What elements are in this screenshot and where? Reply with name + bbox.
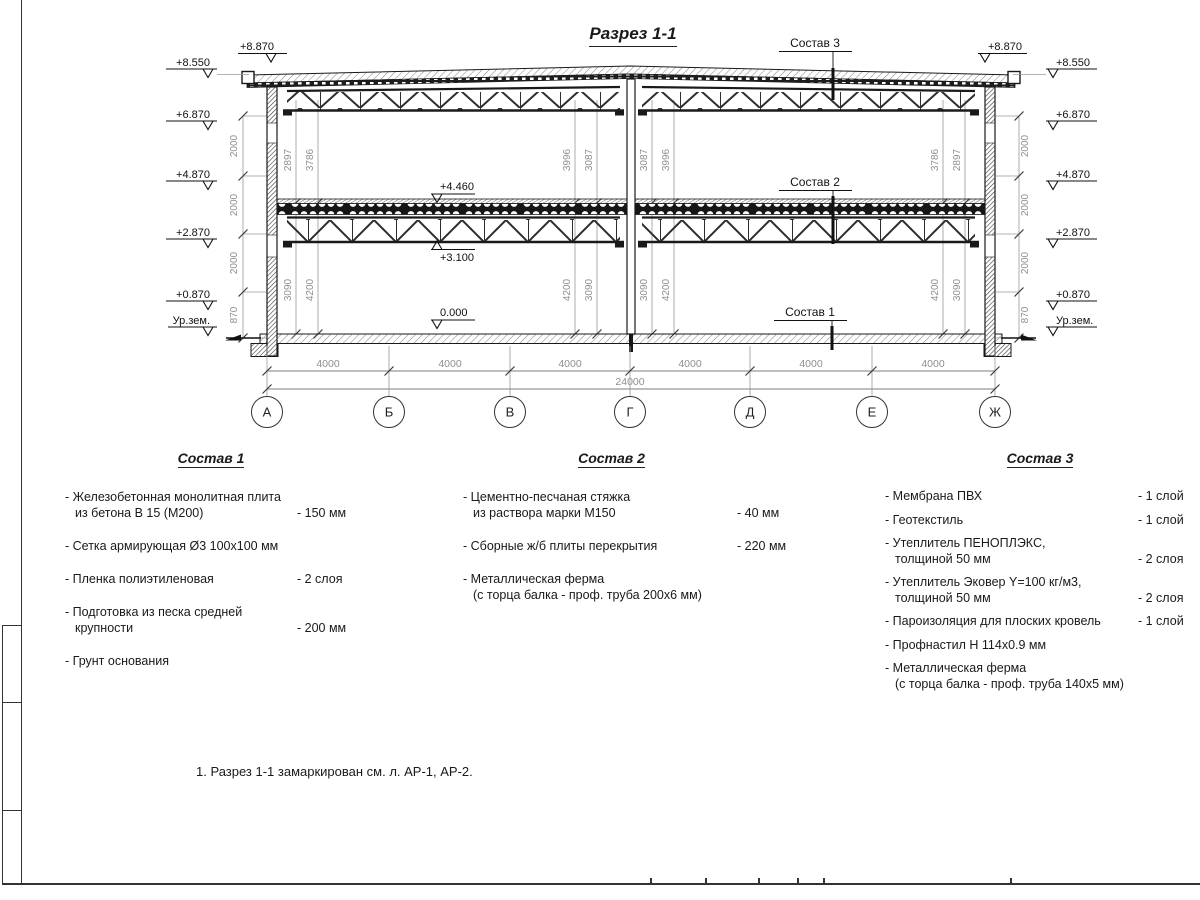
composition-title-text: Состав 1 [178,450,245,468]
wall-left [267,87,277,356]
dim-label: 2000 [1020,134,1031,157]
elevation-mark-6870-left: +6.870 [166,109,217,130]
svg-text:+0.870: +0.870 [176,289,210,301]
composition-list-2: Состав 2 - Цементно-песчаная стяжка из р… [463,450,793,620]
material-name: - Цементно-песчаная стяжка из раствора м… [463,489,737,521]
material-name: - Металлическая ферма (с торца балка - п… [463,571,737,603]
material-value: - 1 слой [1138,513,1195,529]
list-item: - Пароизоляция для плоских кровель- 1 сл… [885,614,1195,630]
svg-text:Состав 1: Состав 1 [785,305,835,319]
material-name: - Пароизоляция для плоских кровель [885,614,1138,630]
material-name: - Мембрана ПВХ [885,489,1138,505]
material-name: - Железобетонная монолитная плита из бет… [65,489,297,521]
elevation-mark-8550-right: +8.550 [1013,57,1097,78]
material-name: - Утеплитель Эковер Y=100 кг/м3, толщино… [885,575,1138,606]
list-item: - Металлическая ферма (с торца балка - п… [463,571,793,603]
svg-text:+8.550: +8.550 [1056,57,1090,69]
axis-label: Д [746,405,755,420]
material-name: - Подготовка из песка средней крупности [65,604,297,636]
material-value: - 40 мм [737,505,793,521]
svg-text:+0.870: +0.870 [1056,289,1090,301]
axis-label: Ж [989,405,1001,420]
ground-level-mark-left: Ур.зем. [168,315,217,336]
list-item: - Мембрана ПВХ- 1 слой [885,489,1195,505]
svg-text:+2.870: +2.870 [176,227,210,239]
list-item: - Пленка полиэтиленовая- 2 слоя [65,571,357,587]
list-item: - Сборные ж/б плиты перекрытия- 220 мм [463,538,793,554]
list-item: - Геотекстиль- 1 слой [885,513,1195,529]
composition-title: Состав 2 [463,450,760,468]
frame-margin-line [2,625,3,884]
dim-label: 870 [1020,306,1031,323]
dim-label: 4200 [305,278,316,301]
frame-cell-divider [2,625,22,626]
svg-text:+8.870: +8.870 [988,41,1022,53]
dim-label: 3090 [283,278,294,301]
axis-label: В [506,405,515,420]
material-name: - Пленка полиэтиленовая [65,571,297,587]
dim-label: 4200 [930,278,941,301]
dim-label: 2897 [952,148,963,171]
composition-title-text: Состав 3 [1007,450,1074,468]
svg-text:+8.550: +8.550 [176,57,210,69]
elevation-mark-0870-right: +0.870 [1046,289,1097,310]
composition-list-1: Состав 1 - Железобетонная монолитная пли… [65,450,357,686]
axis-label: Б [385,405,394,420]
composition-title: Состав 3 [885,450,1195,468]
titleblock-tick [797,878,799,883]
dim-label: 2000 [1020,251,1031,274]
svg-text:+4.870: +4.870 [176,169,210,181]
material-name: - Профнастил Н 114х0.9 мм [885,638,1138,654]
elevation-mark-2870-right: +2.870 [1046,227,1097,248]
list-item: - Сетка армирующая Ø3 100х100 мм [65,538,357,554]
material-value: - 1 слой [1138,614,1195,630]
axis-label: А [263,405,272,420]
composition-title-text: Состав 2 [578,450,645,468]
dim-label: 4200 [661,278,672,301]
svg-text:Ур.зем.: Ур.зем. [1056,315,1093,327]
material-value: - 2 слоя [1138,552,1195,568]
elevation-mark-8870-right: +8.870 [978,41,1027,62]
dim-label: 2897 [283,148,294,171]
elevation-mark-4870-right: +4.870 [1046,169,1097,190]
titleblock-tick [1010,878,1012,883]
bay-dim: 4000 [678,358,702,370]
dim-label: 3090 [639,278,650,301]
svg-text:+4.870: +4.870 [1056,169,1090,181]
material-value: - 150 мм [297,505,357,521]
axis-grid: 4000 4000 4000 4000 4000 4000 24000 [263,346,1000,396]
total-dim: 24000 [615,376,644,388]
wall-right [985,87,995,356]
material-value: - 1 слой [1138,489,1195,505]
left-dim-chain: 2000 2000 2000 870 [229,112,267,343]
material-name: - Грунт основания [65,653,297,669]
roof-edge-cap [1008,72,1020,84]
list-item: - Подготовка из песка средней крупности-… [65,604,357,636]
titleblock-tick [823,878,825,883]
elevation-mark-2870-left: +2.870 [166,227,217,248]
elevation-mark-3100: +3.100 [431,241,475,264]
titleblock-tick [758,878,760,883]
material-value: - 2 слоя [297,571,357,587]
svg-text:Ур.зем.: Ур.зем. [173,315,210,327]
axis-label: Е [868,405,877,420]
dim-label: 870 [229,306,240,323]
elevation-mark-0870-left: +0.870 [166,289,217,310]
titleblock-tick [705,878,707,883]
list-item: - Утеплитель Эковер Y=100 кг/м3, толщино… [885,575,1195,606]
svg-text:+3.100: +3.100 [440,252,474,264]
material-value: - 2 слоя [1138,591,1195,607]
material-name: - Сетка армирующая Ø3 100х100 мм [65,538,297,554]
svg-text:+8.870: +8.870 [240,41,274,53]
elevation-mark-8550-left: +8.550 [166,57,249,78]
roof-truss-right [638,87,979,116]
drawing-note: 1. Разрез 1-1 замаркирован см. л. АР-1, … [196,764,473,779]
material-name: - Утеплитель ПЕНОПЛЭКС, толщиной 50 мм [885,536,1138,567]
dim-label: 3996 [562,148,573,171]
elevation-mark-0000: 0.000 [431,307,475,329]
svg-text:+6.870: +6.870 [176,109,210,121]
elevation-mark-6870-right: +6.870 [1046,109,1097,130]
material-name: - Геотекстиль [885,513,1138,529]
list-item: - Цементно-песчаная стяжка из раствора м… [463,489,793,521]
svg-text:+6.870: +6.870 [1056,109,1090,121]
list-item: - Грунт основания [65,653,357,669]
right-dim-chain: 2000 2000 2000 870 [996,112,1031,343]
dim-label: 3996 [661,148,672,171]
list-item: - Утеплитель ПЕНОПЛЭКС, толщиной 50 мм- … [885,536,1195,567]
svg-text:+2.870: +2.870 [1056,227,1090,239]
dim-label: 3087 [639,148,650,171]
svg-text:Состав 2: Состав 2 [790,175,840,189]
roof-edge-cap [242,72,254,84]
dim-label: 3090 [584,278,595,301]
dim-label: 4200 [562,278,573,301]
dim-label: 2000 [229,251,240,274]
dim-label: 2000 [229,134,240,157]
list-item: - Профнастил Н 114х0.9 мм [885,638,1195,654]
list-item: - Железобетонная монолитная плита из бет… [65,489,357,521]
dim-label: 3090 [952,278,963,301]
bay-dim: 4000 [799,358,823,370]
frame-cell-divider [2,810,22,811]
dim-label: 2000 [229,193,240,216]
roof-truss-left [283,87,624,116]
center-column [627,79,635,352]
material-name: - Металлическая ферма (с торца балка - п… [885,661,1138,692]
section-drawing: 2897 3786 3996 3087 3087 3996 3786 2897 … [0,0,1200,450]
material-value: - 200 мм [297,620,357,636]
drawing-sheet: { "sheet": { "title": "Разрез 1-1", "not… [0,0,1200,900]
composition-list-3: Состав 3 - Мембрана ПВХ- 1 слой - Геотек… [885,450,1195,700]
bay-dim: 4000 [316,358,340,370]
dim-label: 3786 [305,148,316,171]
composition-title: Состав 1 [65,450,357,468]
dim-label: 3786 [930,148,941,171]
titleblock-tick [650,878,652,883]
axis-label: Г [626,405,633,420]
ground-level-mark-right: Ур.зем. [1046,315,1097,336]
frame-bottom-border [2,883,1200,885]
svg-text:+4.460: +4.460 [440,181,474,193]
bay-dim: 4000 [921,358,945,370]
svg-text:Состав 3: Состав 3 [790,36,840,50]
dim-label: 3087 [584,148,595,171]
bay-dim: 4000 [438,358,462,370]
axis-bubbles: А Б В Г Д Е Ж [252,397,1011,428]
elevation-mark-8870-left: +8.870 [238,41,287,62]
floor-truss-left [283,218,624,248]
elevation-mark-4870-left: +4.870 [166,169,217,190]
frame-cell-divider [2,702,22,703]
dim-label: 2000 [1020,193,1031,216]
bay-dim: 4000 [558,358,582,370]
svg-text:0.000: 0.000 [440,307,468,319]
material-value: - 220 мм [737,538,793,554]
material-name: - Сборные ж/б плиты перекрытия [463,538,737,554]
floor-truss-right [638,218,979,248]
list-item: - Металлическая ферма (с торца балка - п… [885,661,1195,692]
